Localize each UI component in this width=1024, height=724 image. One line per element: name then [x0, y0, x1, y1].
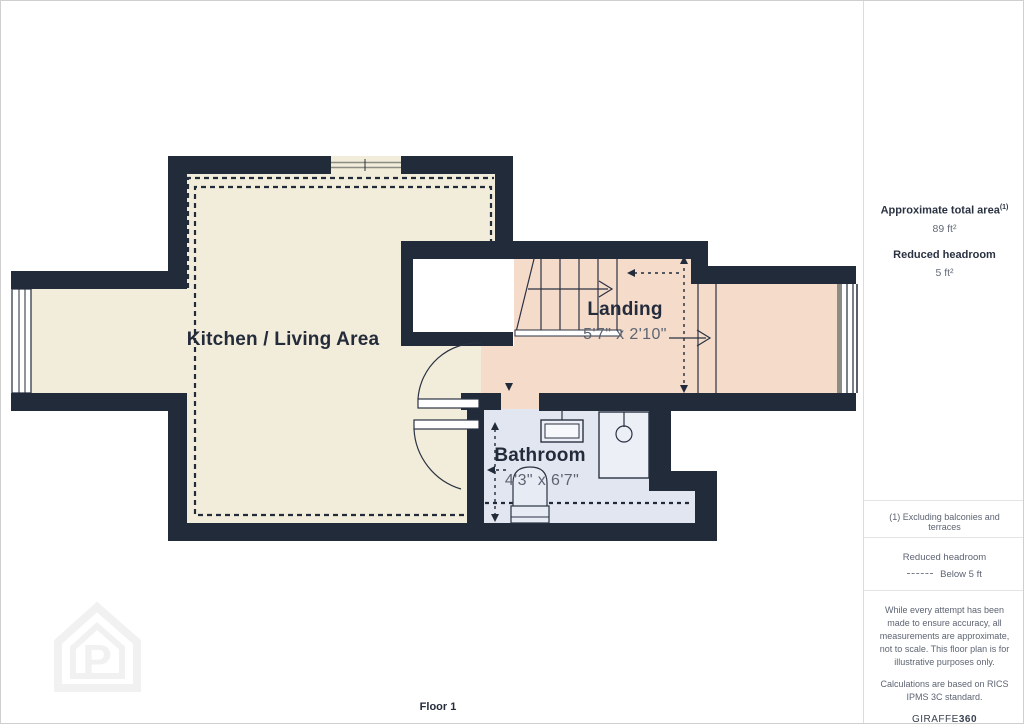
sidebar-divider [864, 590, 1024, 591]
approx-area-value: 89 ft² [864, 223, 1024, 235]
legend-item: Below 5 ft [872, 569, 1017, 580]
bathroom-label: Bathroom [494, 445, 585, 467]
stair-void [413, 256, 511, 333]
house-watermark-logo: P [58, 607, 137, 688]
area-stats: Approximate total area(1) 89 ft² Reduced… [864, 204, 1024, 293]
landing-dimensions: 5'7" x 2'10" [583, 326, 667, 344]
floor-plan-drawing: P [1, 1, 863, 724]
dashed-line-icon [907, 573, 933, 575]
footnote-marker: (1) [1000, 204, 1009, 211]
landing-label: Landing [587, 299, 662, 321]
disclaimer: While every attempt has been made to ens… [876, 604, 1013, 724]
kitchen-living-label: Kitchen / Living Area [187, 329, 379, 351]
floorplan-page: P Kitchen / Living Area Landing 5'7" x 2… [0, 0, 1024, 724]
info-sidebar: Approximate total area(1) 89 ft² Reduced… [863, 1, 1024, 724]
floor-plan: P Kitchen / Living Area Landing 5'7" x 2… [1, 1, 863, 724]
reduced-headroom-title: Reduced headroom [864, 249, 1024, 261]
brand-logo: GIRAFFE360 [876, 713, 1013, 724]
bay-window [12, 289, 31, 393]
bathroom-dimensions: 4'3" x 6'7" [505, 472, 579, 490]
reduced-headroom-value: 5 ft² [864, 267, 1024, 279]
standards-text: Calculations are based on RICS IPMS 3C s… [876, 678, 1013, 704]
right-window [837, 284, 857, 393]
sidebar-divider [864, 537, 1024, 538]
shower [599, 412, 649, 478]
floor-number-label: Floor 1 [420, 701, 457, 713]
watermark-letter: P [82, 636, 111, 685]
disclaimer-text: While every attempt has been made to ens… [876, 604, 1013, 669]
sidebar-divider [864, 500, 1024, 501]
area-footnote: (1) Excluding balconies and terraces [872, 512, 1017, 532]
top-wall-window [331, 156, 401, 174]
approx-area-title: Approximate total area(1) [864, 204, 1024, 217]
legend-title: Reduced headroom [872, 552, 1017, 563]
